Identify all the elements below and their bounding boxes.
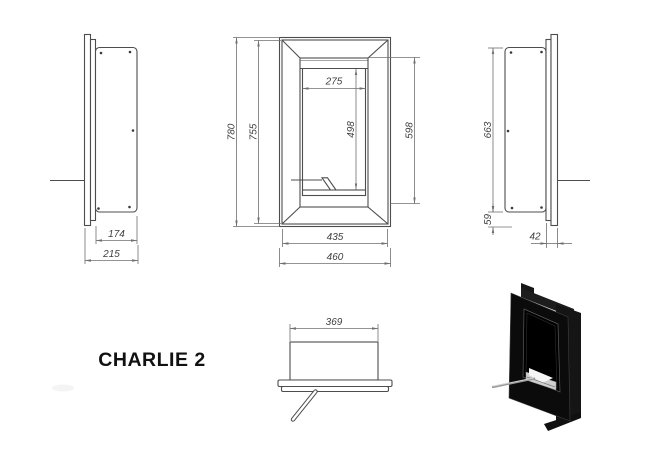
dim-front-inset-height: 598 [405, 122, 416, 139]
body-casing [505, 48, 546, 213]
frame-lip [282, 387, 389, 392]
frame-lip-edge [91, 40, 96, 221]
front-view: 780 755 275 498 598 435 460 [227, 38, 421, 268]
frame-lip-edge [546, 40, 551, 221]
dim-right-body-height: 663 [483, 121, 494, 138]
regulation-rod-fill [293, 392, 316, 420]
screw-icon [97, 207, 100, 210]
dim-front-plate-width: 435 [327, 232, 344, 243]
screw-icon [128, 206, 131, 209]
screw-icon [129, 51, 132, 54]
screw-icon [540, 206, 543, 209]
top-view: 369 [278, 317, 392, 420]
dim-right-bottom-offset: 59 [483, 214, 494, 226]
product-render [493, 283, 581, 431]
screw-icon [511, 207, 514, 210]
screw-icon [507, 130, 510, 133]
frame-plate-edge [551, 35, 558, 226]
drawing-canvas: 174 215 780 755 275 498 [0, 0, 650, 468]
dim-left-total-depth: 215 [102, 249, 120, 260]
screw-icon [100, 52, 103, 55]
dim-front-opening-height: 498 [346, 121, 357, 138]
dim-left-body-depth: 174 [108, 229, 125, 240]
product-title: CHARLIE 2 [98, 349, 205, 371]
frame-plate-edge [85, 35, 91, 226]
dim-top-body-width: 369 [326, 317, 343, 328]
technical-drawing-sheet: 174 215 780 755 275 498 [0, 0, 650, 468]
dim-front-opening-width: 275 [325, 77, 343, 88]
outer-frame [280, 38, 391, 227]
screw-icon [132, 129, 135, 132]
right-side-view: 663 59 42 [483, 35, 590, 249]
watermark-smudge [52, 385, 74, 392]
dim-right-frame-depth: 42 [529, 232, 541, 243]
burner-block [303, 190, 366, 196]
left-side-view: 174 215 [50, 35, 138, 265]
dim-front-outer-height: 780 [227, 123, 238, 140]
body-casing [290, 342, 378, 380]
dim-front-plate-height: 755 [249, 123, 260, 140]
mounting-plate [278, 380, 392, 387]
body-casing [96, 48, 138, 213]
dim-front-outer-width: 460 [327, 252, 344, 263]
screw-icon [510, 51, 513, 54]
screw-icon [540, 51, 543, 54]
